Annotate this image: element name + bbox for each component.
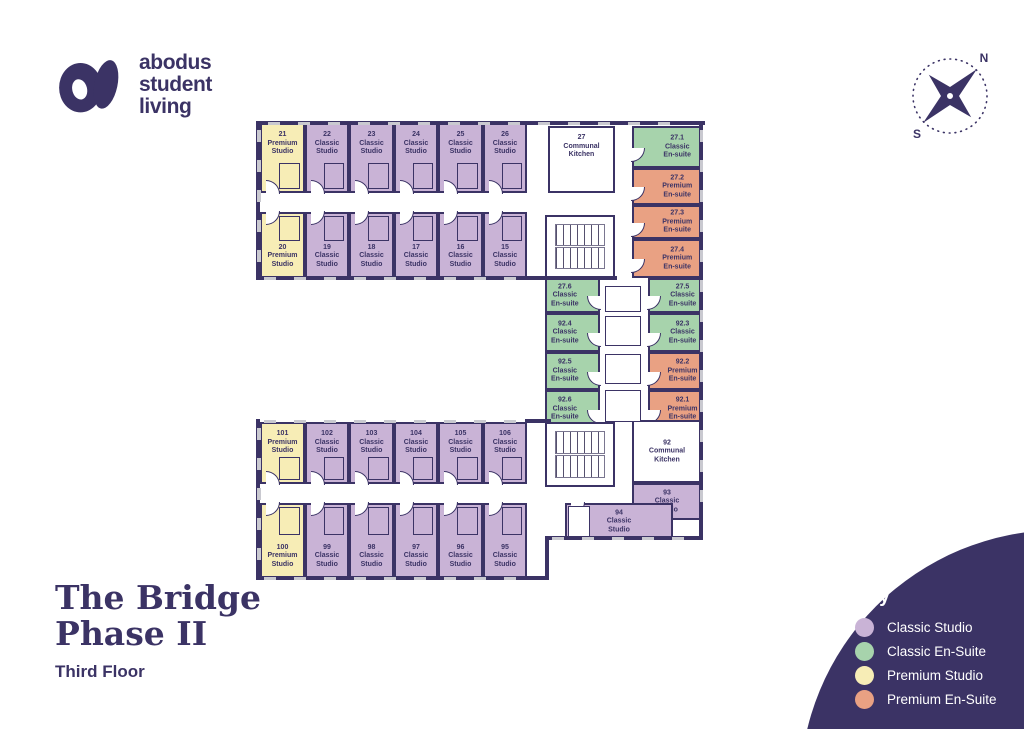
- bathroom-pod: [413, 216, 433, 241]
- window-mark: [700, 220, 704, 232]
- staircase-1: [545, 215, 615, 278]
- door-arc-icon: [355, 180, 369, 194]
- window-mark: [384, 420, 396, 424]
- wall-segment: [256, 276, 617, 280]
- window-mark: [418, 122, 430, 126]
- room-label: 103 Classic Studio: [351, 430, 392, 456]
- door-arc-icon: [631, 148, 645, 162]
- room-label: 23 Classic Studio: [351, 131, 392, 157]
- bathroom-pod: [279, 163, 300, 189]
- bathroom-pod: [324, 507, 344, 535]
- room-24: 24 Classic Studio: [394, 123, 438, 193]
- window-mark: [257, 130, 261, 142]
- key-color-dot: [855, 618, 874, 637]
- window-mark: [448, 122, 460, 126]
- window-mark: [294, 577, 306, 581]
- room-label: 26 Classic Studio: [485, 131, 525, 157]
- window-mark: [298, 122, 310, 126]
- window-mark: [257, 220, 261, 232]
- floor-plan-page: abodus student living N S 21 Premium Stu…: [0, 0, 1024, 729]
- window-mark: [504, 277, 516, 281]
- room-label: 95 Classic Studio: [485, 544, 525, 570]
- window-mark: [642, 537, 654, 541]
- door-arc-icon: [444, 471, 458, 485]
- window-mark: [257, 548, 261, 560]
- bathroom-pod: [457, 457, 478, 480]
- window-mark: [700, 160, 704, 172]
- room-103: 103 Classic Studio: [349, 422, 394, 484]
- staircase-2: [545, 422, 615, 487]
- window-mark: [324, 277, 336, 281]
- window-mark: [414, 277, 426, 281]
- bathroom-pod: [324, 216, 344, 241]
- window-mark: [700, 130, 704, 142]
- room-15: 15 Classic Studio: [483, 212, 527, 278]
- window-mark: [552, 537, 564, 541]
- window-mark: [538, 122, 550, 126]
- bathroom-pod: [502, 507, 522, 535]
- door-arc-icon: [266, 502, 280, 516]
- room-106: 106 Classic Studio: [483, 422, 527, 484]
- stair-flight: [555, 455, 605, 478]
- room-label: 100 Premium Studio: [262, 544, 303, 570]
- window-mark: [388, 122, 400, 126]
- room-label: 17 Classic Studio: [396, 244, 436, 270]
- room-label: 102 Classic Studio: [307, 430, 347, 456]
- room-label: 18 Classic Studio: [351, 244, 392, 270]
- window-mark: [504, 420, 516, 424]
- key-color-dot: [855, 690, 874, 709]
- door-arc-icon: [647, 333, 661, 347]
- window-mark: [700, 400, 704, 412]
- window-mark: [474, 577, 486, 581]
- window-mark: [444, 577, 456, 581]
- room-label: 101 Premium Studio: [262, 430, 303, 456]
- window-mark: [324, 577, 336, 581]
- window-mark: [700, 370, 704, 382]
- room-label: 92.2 Premium En-suite: [667, 358, 698, 384]
- room-label: 19 Classic Studio: [307, 244, 347, 270]
- room-25: 25 Classic Studio: [438, 123, 483, 193]
- corridor-bathroom-pod: [605, 286, 641, 312]
- key-item-label: Premium Studio: [887, 668, 983, 683]
- room-97: 97 Classic Studio: [394, 503, 438, 578]
- key-item: Classic Studio: [855, 617, 997, 637]
- room-27.2: 27.2 Premium En-suite: [632, 168, 702, 205]
- key-color-dot: [855, 666, 874, 685]
- window-mark: [444, 277, 456, 281]
- window-mark: [700, 490, 704, 502]
- bathroom-pod: [502, 163, 522, 189]
- room-92: 92 Communal Kitchen: [632, 420, 702, 483]
- window-mark: [672, 537, 684, 541]
- door-arc-icon: [647, 296, 661, 310]
- room-label: 21 Premium Studio: [262, 131, 303, 157]
- room-label: 104 Classic Studio: [396, 430, 436, 456]
- window-mark: [257, 488, 261, 500]
- window-mark: [700, 460, 704, 472]
- room-label: 27.1 Classic En-suite: [656, 134, 698, 160]
- door-arc-icon: [587, 333, 601, 347]
- key-item-label: Premium En-Suite: [887, 692, 997, 707]
- room-label: 92.3 Classic En-suite: [667, 320, 698, 346]
- room-label: 20 Premium Studio: [262, 244, 303, 270]
- door-arc-icon: [631, 223, 645, 237]
- room-label: 96 Classic Studio: [440, 544, 481, 570]
- bathroom-pod: [368, 163, 389, 189]
- room-22: 22 Classic Studio: [305, 123, 349, 193]
- window-mark: [508, 122, 520, 126]
- stair-flight: [555, 247, 605, 269]
- window-mark: [628, 122, 640, 126]
- corridor-bathroom-pod: [568, 506, 590, 537]
- door-arc-icon: [266, 471, 280, 485]
- window-mark: [568, 122, 580, 126]
- window-mark: [504, 577, 516, 581]
- room-19: 19 Classic Studio: [305, 212, 349, 278]
- room-label: 92 Communal Kitchen: [634, 439, 700, 465]
- room-20: 20 Premium Studio: [260, 212, 305, 278]
- wall-segment: [545, 536, 549, 580]
- bathroom-pod: [368, 216, 389, 241]
- room-label: 98 Classic Studio: [351, 544, 392, 570]
- room-label: 15 Classic Studio: [485, 244, 525, 270]
- door-arc-icon: [444, 211, 458, 225]
- bathroom-pod: [324, 163, 344, 189]
- room-98: 98 Classic Studio: [349, 503, 394, 578]
- room-96: 96 Classic Studio: [438, 503, 483, 578]
- bathroom-pod: [279, 457, 300, 480]
- floor-subtitle: Third Floor: [55, 662, 261, 682]
- window-mark: [700, 190, 704, 202]
- room-label: 106 Classic Studio: [485, 430, 525, 456]
- title-block: The Bridge Phase II Third Floor: [55, 580, 261, 682]
- door-arc-icon: [647, 372, 661, 386]
- door-arc-icon: [444, 180, 458, 194]
- wall-segment: [525, 419, 551, 423]
- room-92.2: 92.2 Premium En-suite: [648, 352, 702, 390]
- window-mark: [294, 420, 306, 424]
- room-27.4: 27.4 Premium En-suite: [632, 239, 702, 278]
- room-label: 92.1 Premium En-suite: [667, 396, 698, 422]
- window-mark: [324, 420, 336, 424]
- key-color-dot: [855, 642, 874, 661]
- room-21: 21 Premium Studio: [260, 123, 305, 193]
- bathroom-pod: [502, 216, 522, 241]
- room-label: 16 Classic Studio: [440, 244, 481, 270]
- room-27.1: 27.1 Classic En-suite: [632, 126, 702, 168]
- room-104: 104 Classic Studio: [394, 422, 438, 484]
- door-arc-icon: [587, 372, 601, 386]
- bathroom-pod: [368, 457, 389, 480]
- bathroom-pod: [457, 507, 478, 535]
- room-label: 27 Communal Kitchen: [550, 134, 613, 160]
- window-mark: [257, 250, 261, 262]
- bathroom-pod: [279, 507, 300, 535]
- window-mark: [474, 277, 486, 281]
- window-mark: [582, 537, 594, 541]
- door-arc-icon: [444, 502, 458, 516]
- window-mark: [257, 190, 261, 202]
- door-arc-icon: [355, 502, 369, 516]
- key-item: Premium Studio: [855, 665, 997, 685]
- key-items: Classic StudioClassic En-SuitePremium St…: [855, 617, 997, 709]
- room-27: 27 Communal Kitchen: [548, 126, 615, 193]
- room-27.6: 27.6 Classic En-suite: [545, 278, 600, 313]
- room-27.3: 27.3 Premium En-suite: [632, 205, 702, 239]
- window-mark: [354, 277, 366, 281]
- room-26: 26 Classic Studio: [483, 123, 527, 193]
- bathroom-pod: [413, 507, 433, 535]
- window-mark: [444, 420, 456, 424]
- room-102: 102 Classic Studio: [305, 422, 349, 484]
- corridor-bathroom-pod: [605, 390, 641, 422]
- room-label: 92.4 Classic En-suite: [549, 320, 581, 346]
- room-label: 105 Classic Studio: [440, 430, 481, 456]
- corridor-bathroom-pod: [605, 354, 641, 384]
- window-mark: [257, 518, 261, 530]
- room-label: 27.5 Classic En-suite: [667, 283, 698, 309]
- room-label: 27.3 Premium En-suite: [656, 209, 698, 235]
- room-27.5: 27.5 Classic En-suite: [648, 278, 702, 313]
- bathroom-pod: [457, 163, 478, 189]
- bathroom-pod: [279, 216, 300, 241]
- door-arc-icon: [587, 296, 601, 310]
- building-title-line-2: Phase II: [55, 616, 261, 652]
- window-mark: [474, 420, 486, 424]
- window-mark: [268, 122, 280, 126]
- window-mark: [700, 310, 704, 322]
- window-mark: [257, 428, 261, 440]
- room-99: 99 Classic Studio: [305, 503, 349, 578]
- door-arc-icon: [631, 187, 645, 201]
- bathroom-pod: [413, 457, 433, 480]
- key-item-label: Classic En-Suite: [887, 644, 986, 659]
- room-100: 100 Premium Studio: [260, 503, 305, 578]
- key-item: Premium En-Suite: [855, 689, 997, 709]
- room-92.3: 92.3 Classic En-suite: [648, 313, 702, 352]
- door-arc-icon: [355, 471, 369, 485]
- window-mark: [354, 577, 366, 581]
- window-mark: [264, 577, 276, 581]
- room-105: 105 Classic Studio: [438, 422, 483, 484]
- room-23: 23 Classic Studio: [349, 123, 394, 193]
- door-arc-icon: [266, 211, 280, 225]
- room-17: 17 Classic Studio: [394, 212, 438, 278]
- window-mark: [700, 430, 704, 442]
- room-16: 16 Classic Studio: [438, 212, 483, 278]
- window-mark: [384, 577, 396, 581]
- room-label: 99 Classic Studio: [307, 544, 347, 570]
- bathroom-pod: [368, 507, 389, 535]
- window-mark: [478, 122, 490, 126]
- window-mark: [384, 277, 396, 281]
- wall-segment: [699, 121, 703, 540]
- window-mark: [700, 250, 704, 262]
- bathroom-pod: [457, 216, 478, 241]
- window-mark: [354, 420, 366, 424]
- door-arc-icon: [355, 211, 369, 225]
- door-arc-icon: [266, 180, 280, 194]
- window-mark: [358, 122, 370, 126]
- room-101: 101 Premium Studio: [260, 422, 305, 484]
- window-mark: [658, 122, 670, 126]
- window-mark: [414, 420, 426, 424]
- stair-flight: [555, 431, 605, 454]
- bathroom-pod: [502, 457, 522, 480]
- room-label: 92.6 Classic En-suite: [549, 396, 581, 422]
- window-mark: [264, 420, 276, 424]
- room-label: 27.2 Premium En-suite: [656, 174, 698, 200]
- key-item-label: Classic Studio: [887, 620, 973, 635]
- window-mark: [700, 280, 704, 292]
- room-label: 92.5 Classic En-suite: [549, 358, 581, 384]
- key-title: Key: [855, 586, 997, 608]
- room-label: 97 Classic Studio: [396, 544, 436, 570]
- key-legend: Key Classic StudioClassic En-SuitePremiu…: [855, 586, 997, 713]
- window-mark: [598, 122, 610, 126]
- room-92.5: 92.5 Classic En-suite: [545, 352, 600, 390]
- window-mark: [612, 537, 624, 541]
- door-arc-icon: [631, 259, 645, 273]
- stair-flight: [555, 224, 605, 246]
- room-label: 25 Classic Studio: [440, 131, 481, 157]
- room-label: 24 Classic Studio: [396, 131, 436, 157]
- window-mark: [700, 340, 704, 352]
- window-mark: [414, 577, 426, 581]
- window-mark: [328, 122, 340, 126]
- building-title-line-1: The Bridge: [55, 580, 261, 616]
- key-item: Classic En-Suite: [855, 641, 997, 661]
- bathroom-pod: [324, 457, 344, 480]
- room-label: 27.6 Classic En-suite: [549, 283, 581, 309]
- room-95: 95 Classic Studio: [483, 503, 527, 578]
- window-mark: [264, 277, 276, 281]
- room-92.4: 92.4 Classic En-suite: [545, 313, 600, 352]
- room-18: 18 Classic Studio: [349, 212, 394, 278]
- room-label: 27.4 Premium En-suite: [656, 246, 698, 272]
- window-mark: [257, 160, 261, 172]
- window-mark: [257, 458, 261, 470]
- corridor-bathroom-pod: [605, 316, 641, 346]
- bathroom-pod: [413, 163, 433, 189]
- room-label: 22 Classic Studio: [307, 131, 347, 157]
- window-mark: [294, 277, 306, 281]
